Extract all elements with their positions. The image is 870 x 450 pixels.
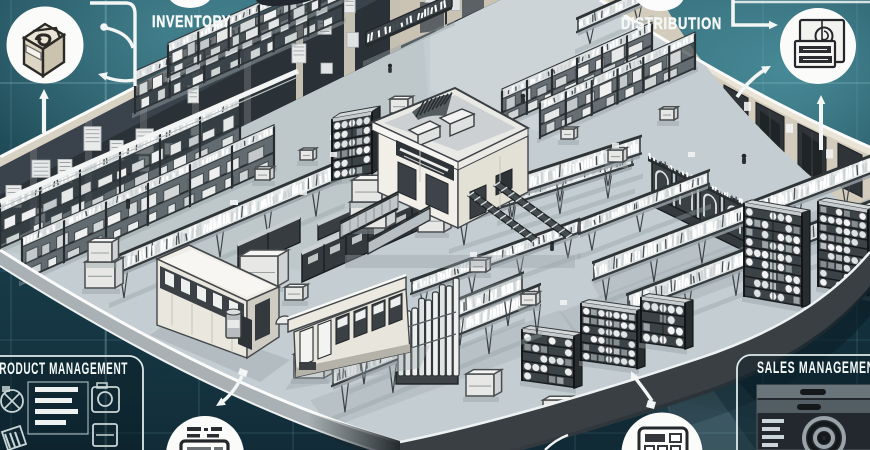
svg-text:DISTRIBUTION: DISTRIBUTION	[621, 14, 722, 33]
svg-text:PRODUCT MANAGEMENT: PRODUCT MANAGEMENT	[0, 359, 128, 378]
svg-text:SALES MANAGEMENT: SALES MANAGEMENT	[757, 358, 870, 377]
svg-text:INVENTORY: INVENTORY	[152, 12, 231, 31]
